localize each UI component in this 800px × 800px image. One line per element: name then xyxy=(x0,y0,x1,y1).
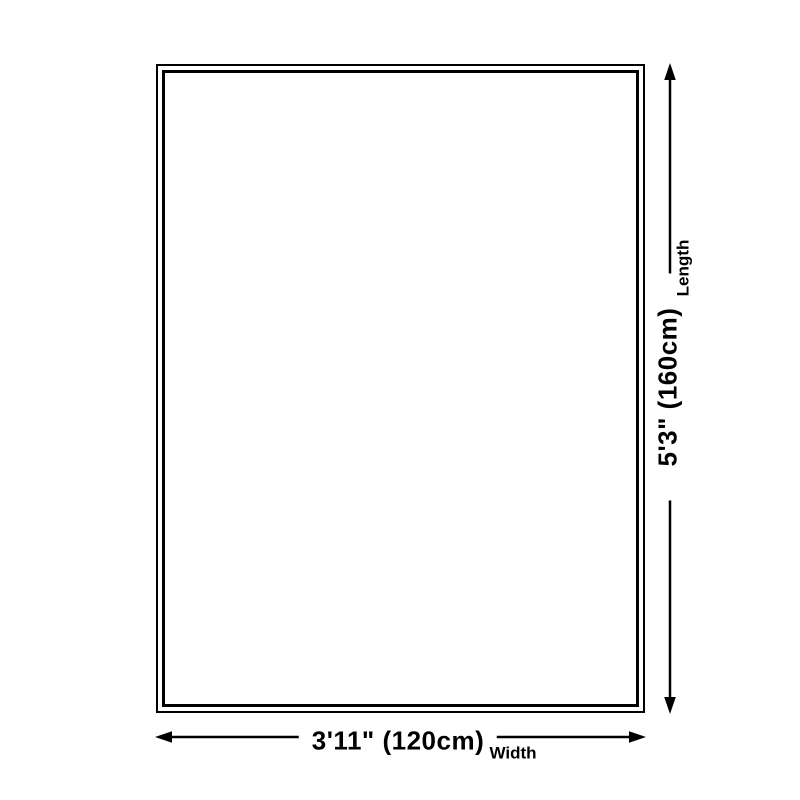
width-value: 3'11" (120cm) xyxy=(299,725,497,758)
arrow-left-icon xyxy=(155,731,172,743)
arrow-up-icon xyxy=(664,63,676,80)
width-label: Width xyxy=(489,745,536,764)
arrow-right-icon xyxy=(629,731,646,743)
length-value: 5'3" (160cm) xyxy=(652,274,685,501)
size-diagram: 5'3" (160cm) Length 3'11" (120cm) Width xyxy=(0,0,800,800)
arrow-down-icon xyxy=(664,697,676,714)
length-label: Length xyxy=(675,240,694,297)
